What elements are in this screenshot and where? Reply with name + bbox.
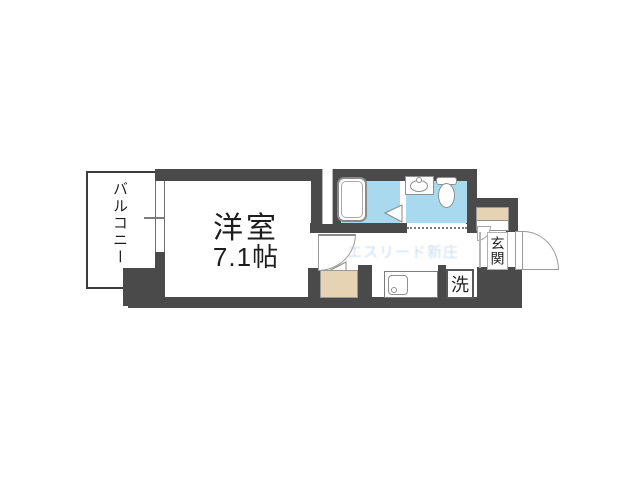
entrance-door-arc bbox=[523, 231, 559, 270]
laundry-space: 洗 bbox=[446, 269, 474, 299]
entrance-label: 玄関 bbox=[491, 236, 505, 266]
burner-dot-icon bbox=[391, 287, 397, 293]
shoe-cabinet bbox=[476, 207, 509, 221]
laundry-label: 洗 bbox=[451, 271, 469, 297]
watermark-text: エスリード新庄 bbox=[347, 241, 467, 262]
wall-closet-right bbox=[358, 265, 372, 302]
wall-entrance-bottom-block bbox=[477, 267, 522, 308]
room-size-label: 7.1帖 bbox=[166, 237, 326, 274]
window-center-tick bbox=[144, 217, 165, 219]
wall-kitchen-right bbox=[438, 265, 446, 302]
closet bbox=[320, 270, 358, 298]
sliding-door-marker bbox=[407, 224, 467, 233]
entrance-door-leaf bbox=[515, 231, 523, 270]
floorplan: バルコニー 洗 bbox=[0, 0, 640, 480]
faucet-icon bbox=[416, 177, 422, 183]
balcony-label: バルコニー bbox=[112, 181, 127, 269]
bath-door-triangle bbox=[384, 204, 403, 223]
bathtub-inner bbox=[341, 181, 363, 218]
wall-top-left bbox=[155, 169, 322, 181]
entrance-area: 玄関 bbox=[487, 232, 508, 270]
toilet-icon bbox=[438, 183, 455, 208]
entrance-step-line bbox=[479, 232, 481, 268]
